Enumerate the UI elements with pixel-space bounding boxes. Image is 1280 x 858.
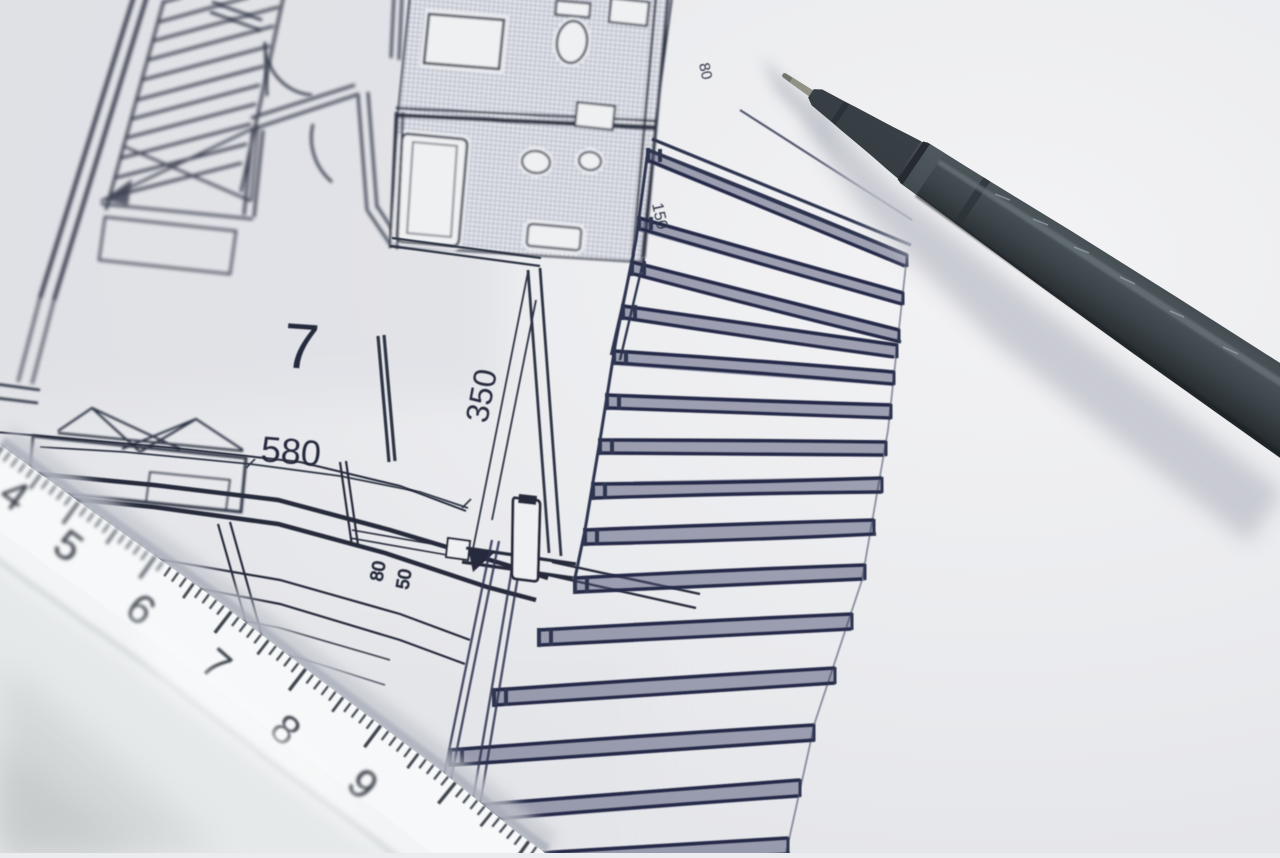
svg-text:80: 80 <box>366 559 389 582</box>
svg-text:50: 50 <box>392 567 415 590</box>
svg-text:7: 7 <box>281 309 322 383</box>
svg-text:80: 80 <box>695 61 715 81</box>
